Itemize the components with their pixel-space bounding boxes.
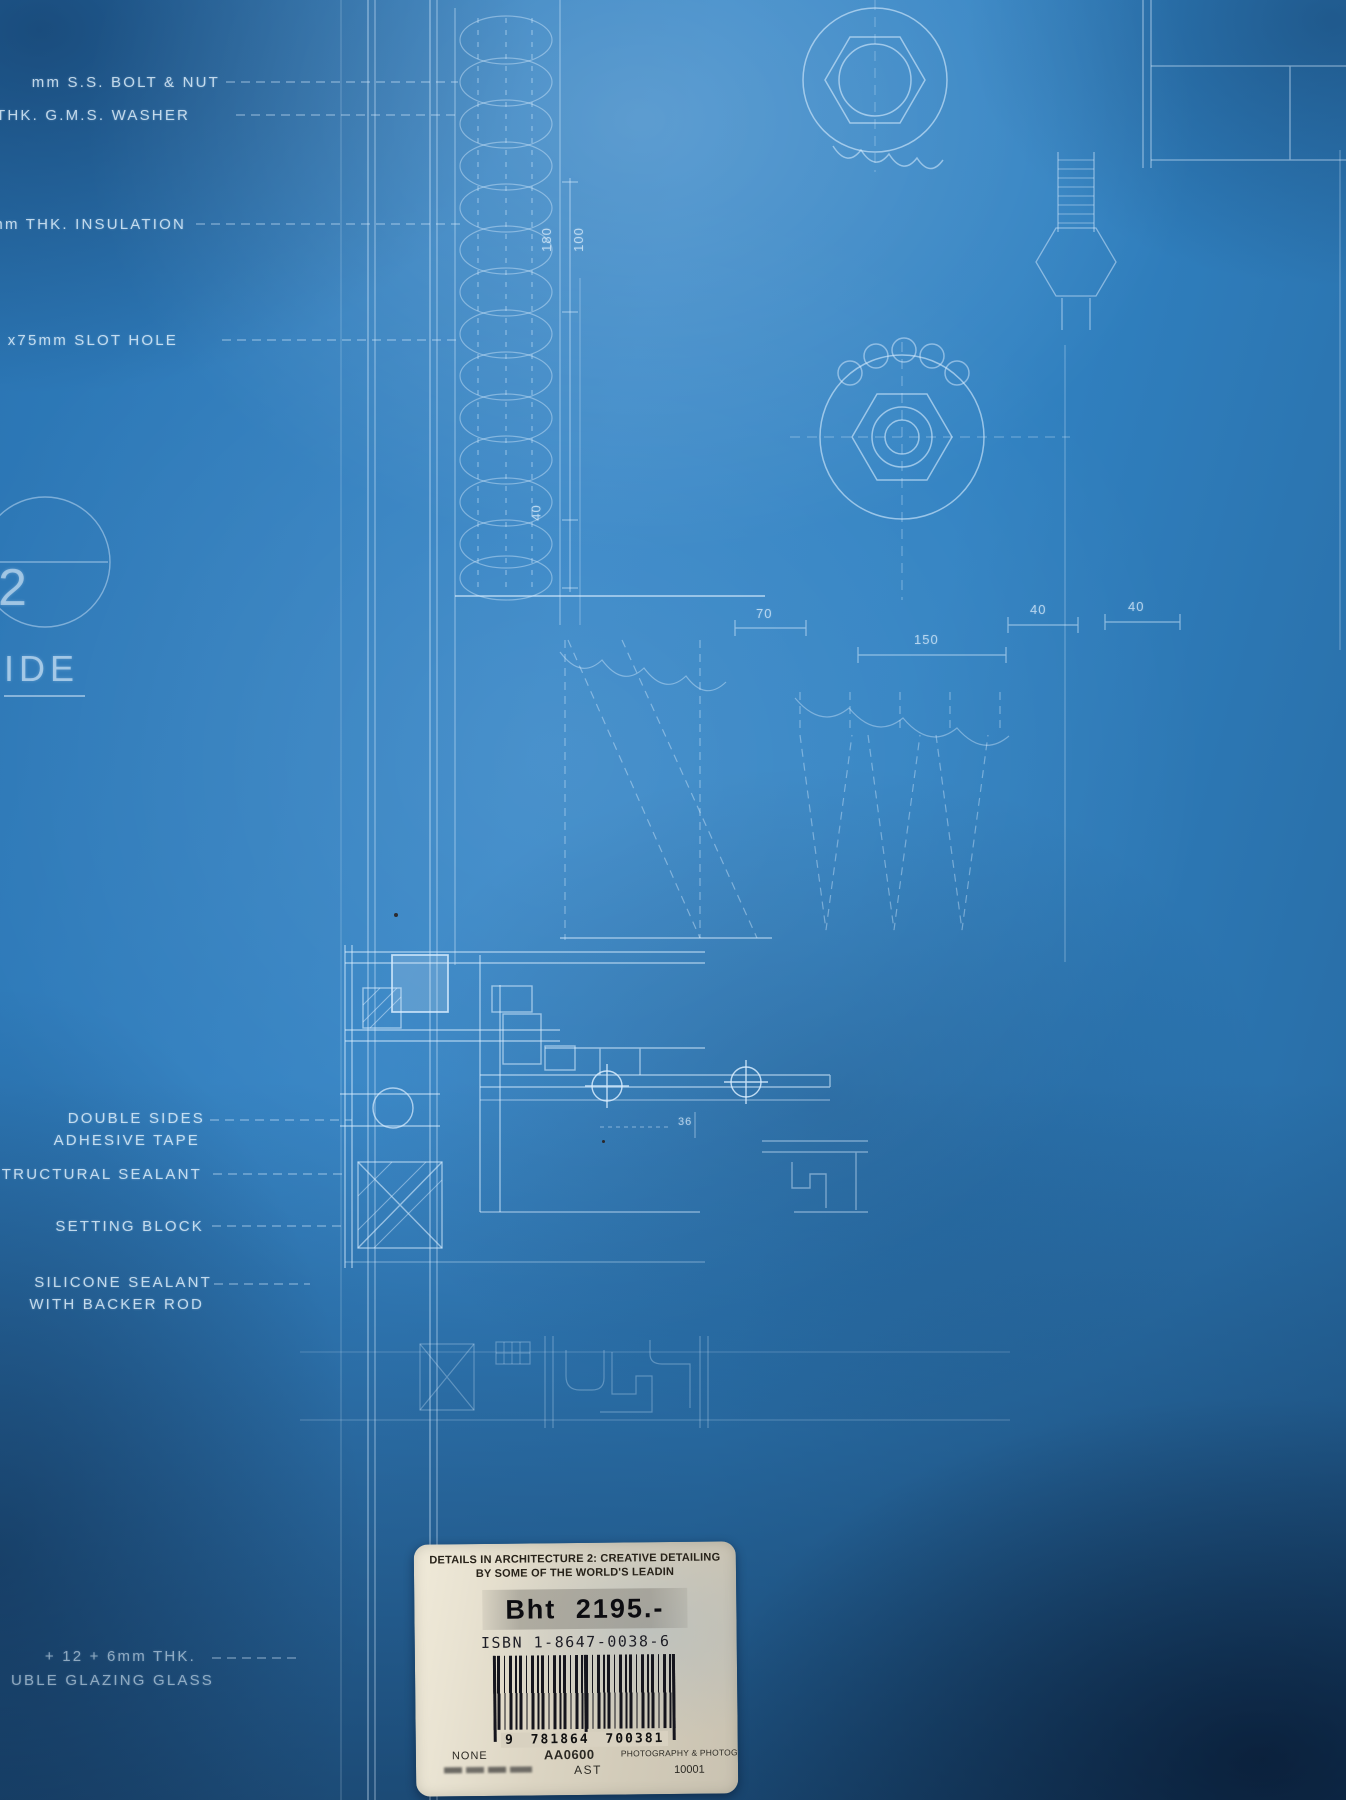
dimension-150: 150	[914, 632, 939, 647]
price-label: Bht 2195.-	[482, 1588, 687, 1630]
dimension-40-vertical: 40	[529, 504, 544, 520]
bolt-detail-middle	[790, 338, 1070, 600]
dust-speck	[602, 1140, 605, 1143]
label-insulation: mm THK. INSULATION	[0, 216, 186, 233]
barcode: 9 781864 700381	[493, 1654, 676, 1748]
label-slot-hole: x75mm SLOT HOLE	[0, 332, 178, 349]
label-setting-block: SETTING BLOCK	[0, 1218, 204, 1235]
price-sticker: DETAILS IN ARCHITECTURE 2: CREATIVE DETA…	[414, 1541, 739, 1796]
detail-number: 2	[0, 558, 27, 618]
sticker-footer-number: 10001	[674, 1764, 705, 1776]
dimension-100: 100	[571, 227, 586, 252]
dimension-36: 36	[678, 1116, 692, 1128]
sticker-title-line1: DETAILS IN ARCHITECTURE 2: CREATIVE DETA…	[414, 1551, 736, 1566]
sticker-footer-code: AA0600	[544, 1747, 595, 1763]
sticker-footer-none: NONE	[452, 1750, 488, 1762]
profiles-above-sticker	[300, 1336, 1010, 1428]
label-glazing-1: + 12 + 6mm THK.	[0, 1648, 196, 1665]
bolt-detail-top	[803, 0, 947, 172]
label-bolt-nut: mm S.S. BOLT & NUT	[0, 74, 220, 91]
label-structural-sealant: TRUCTURAL SEALANT	[0, 1166, 202, 1183]
book-back-cover: mm S.S. BOLT & NUT THK. G.M.S. WASHER mm…	[0, 0, 1346, 1800]
dimension-70: 70	[756, 606, 772, 621]
dimension-40-a: 40	[1030, 602, 1046, 617]
label-silicone-2: WITH BACKER ROD	[0, 1296, 204, 1313]
dust-speck	[394, 913, 398, 917]
label-double-sides-2: ADHESIVE TAPE	[0, 1132, 200, 1149]
label-double-sides-1: DOUBLE SIDES	[0, 1110, 205, 1127]
threaded-rod-and-nut	[1036, 0, 1346, 330]
barcode-guard-right	[672, 1654, 676, 1740]
isbn-label: ISBN 1-8647-0038-6	[415, 1631, 737, 1652]
dimension-row	[735, 614, 1180, 663]
dimension-40-b: 40	[1128, 599, 1144, 614]
long-vertical-lines	[341, 0, 1340, 1800]
anchor-v-pattern	[795, 692, 1009, 930]
label-glazing-2: UBLE GLAZING GLASS	[0, 1672, 214, 1689]
fine-print-smudge	[444, 1766, 532, 1773]
sticker-title-line2: BY SOME OF THE WORLD'S LEADIN	[414, 1565, 736, 1580]
label-silicone-1: SILICONE SEALANT	[0, 1274, 212, 1291]
dimension-180: 180	[539, 227, 554, 252]
anchor-funnel	[560, 640, 757, 940]
blueprint-linework	[0, 0, 1346, 1800]
leader-lines	[196, 82, 460, 1658]
sticker-footer-category: PHOTOGRAPHY & PHOTOGRAPHS	[621, 1747, 738, 1759]
mullion-assembly	[340, 945, 868, 1268]
sticker-footer-ast: AST	[574, 1763, 602, 1777]
label-washer: THK. G.M.S. WASHER	[0, 107, 182, 124]
insulation-coil	[455, 16, 772, 938]
barcode-digits: 9 781864 700381	[501, 1731, 669, 1748]
label-side: IDE	[4, 648, 85, 697]
